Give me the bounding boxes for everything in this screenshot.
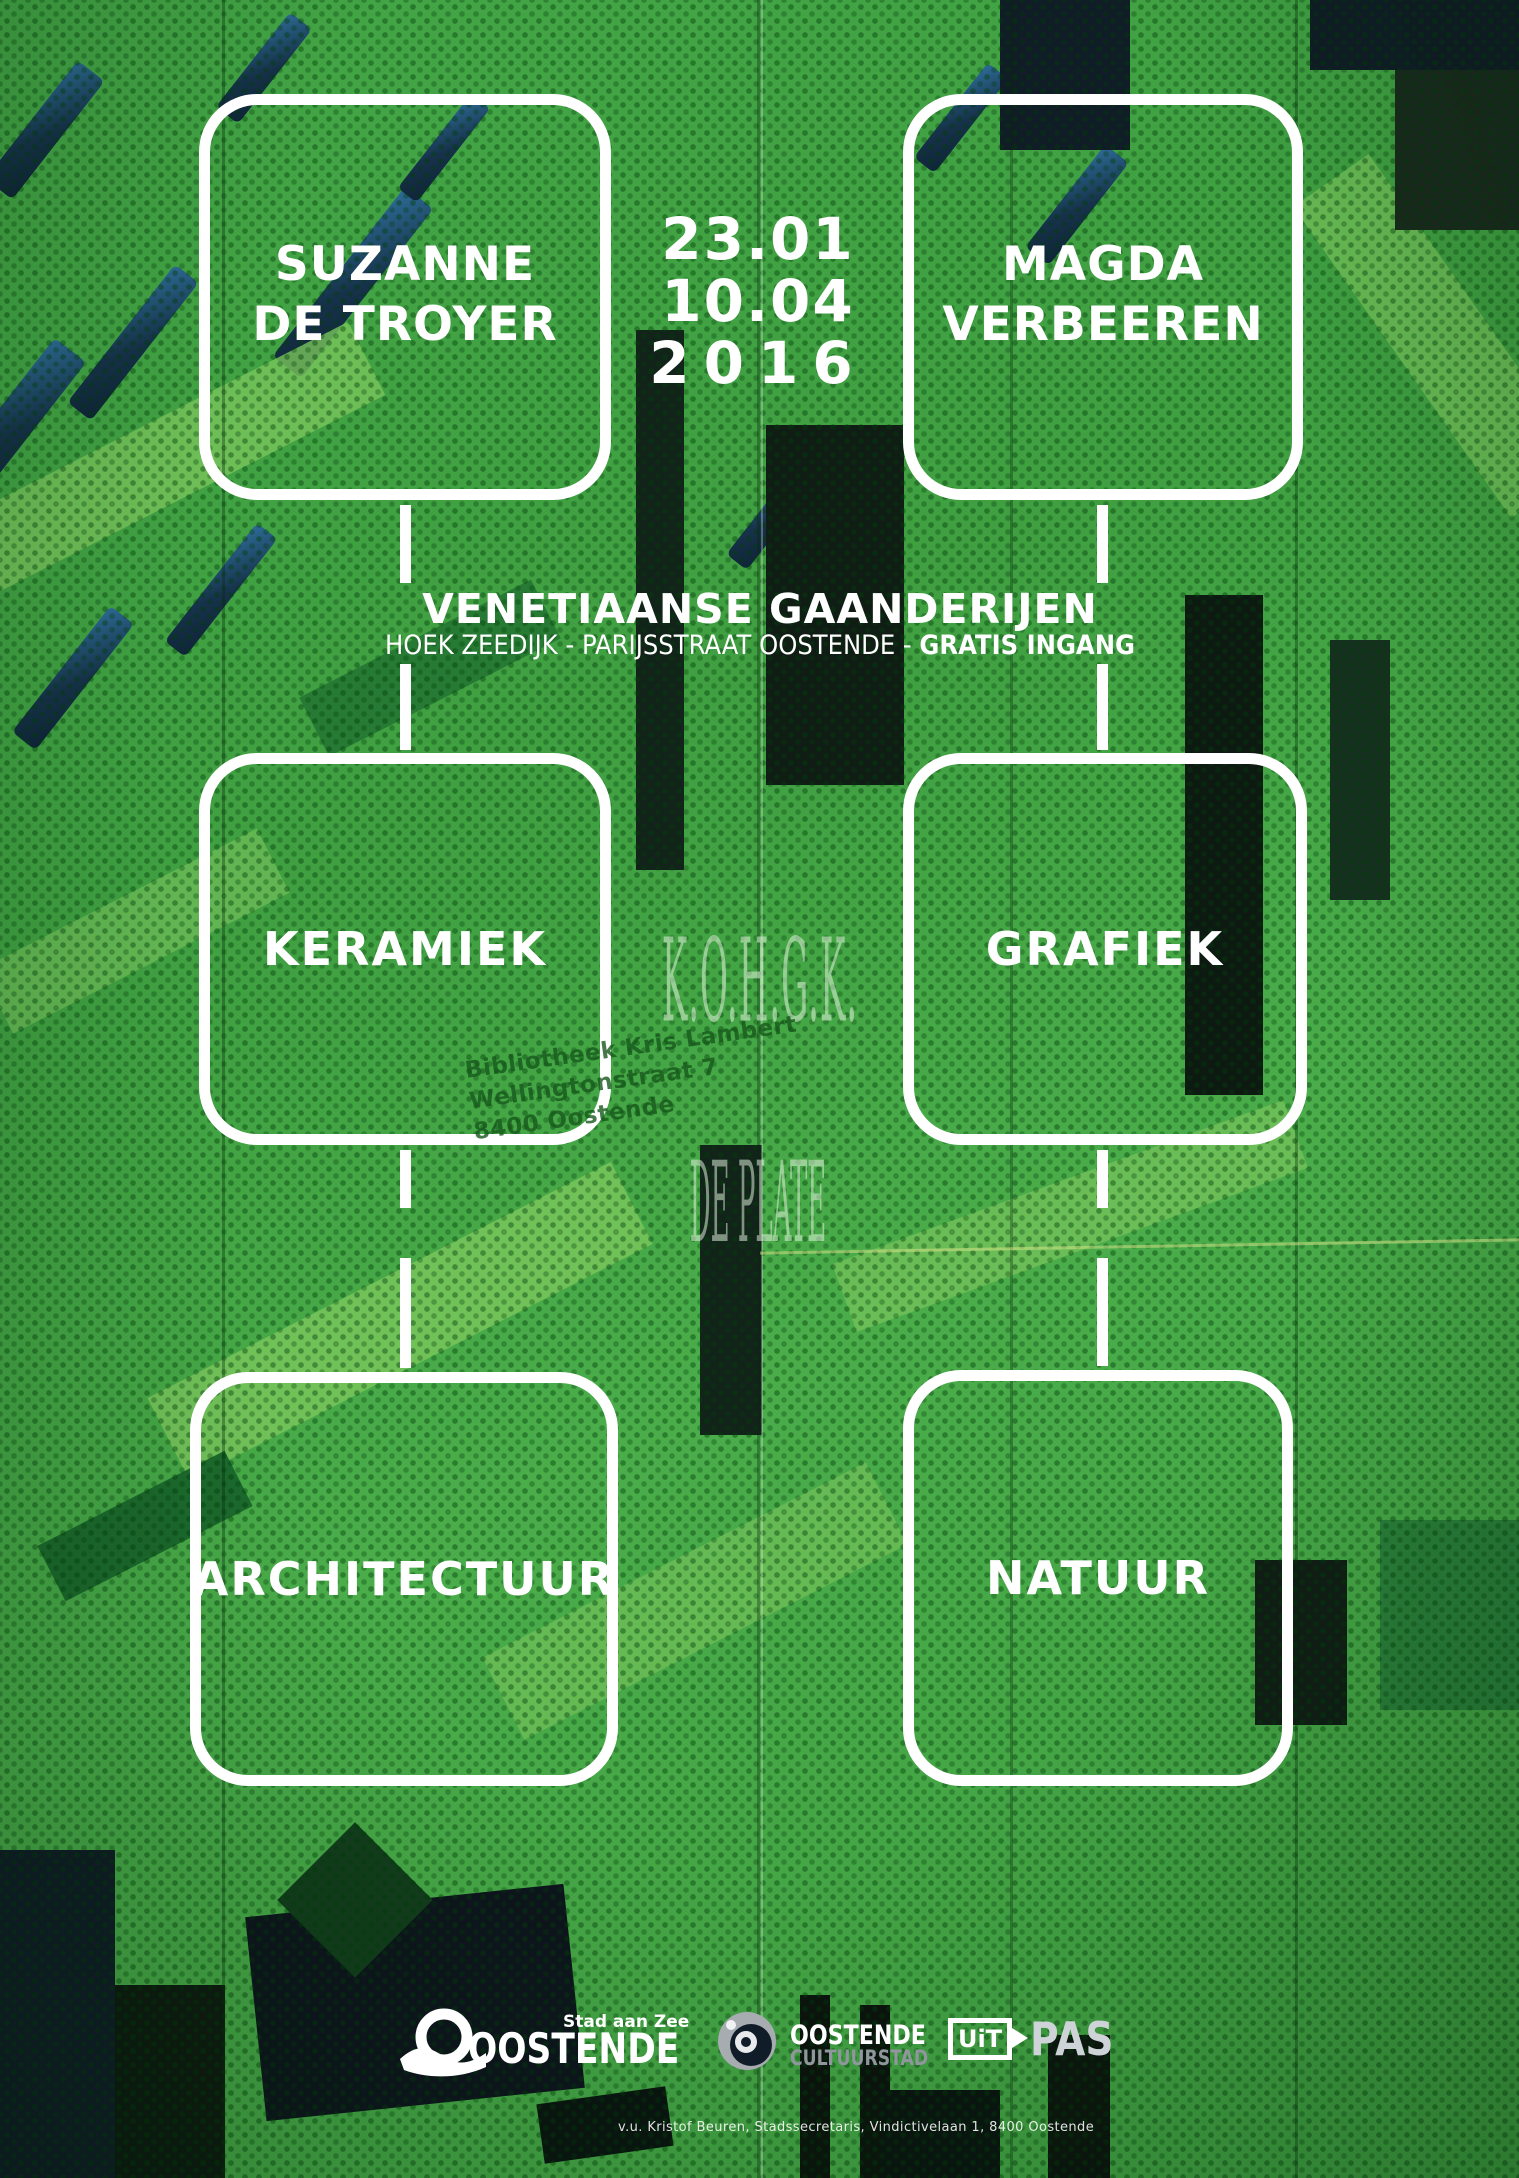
category-label-architectuur: ARCHITECTUUR [190, 1372, 618, 1786]
venue-title: VENETIAANSE GAANDERIJEN [310, 585, 1210, 633]
oostende-logo-name: OOSTENDE [468, 2024, 679, 2073]
category-label-grafiek: GRAFIEK [903, 753, 1307, 1145]
uit-box-icon: UiT [948, 2018, 1012, 2060]
connector-line [1097, 664, 1108, 750]
connector-line [1097, 1258, 1108, 1366]
artist-right-line2: VERBEEREN [903, 295, 1303, 355]
cultuurstad-eye-pupil [730, 2024, 772, 2066]
connector-line [400, 664, 411, 750]
connector-line [400, 505, 411, 583]
venue-address: HOEK ZEEDIJK - PARIJSSTRAAT OOSTENDE - G… [355, 630, 1165, 661]
connector-line [400, 1150, 411, 1208]
uit-flag-icon [1012, 2028, 1028, 2048]
artist-right-line1: MAGDA [903, 235, 1303, 295]
connector-line [1097, 505, 1108, 583]
date-start: 23.01 [608, 208, 908, 270]
cultuurstad-eye-dot [726, 2020, 736, 2030]
cultuurstad-logo-line2: CULTUURSTAD [790, 2046, 928, 2070]
venue-address-bold: GRATIS INGANG [919, 630, 1135, 661]
artist-name-right: MAGDA VERBEEREN [903, 235, 1303, 355]
exhibition-dates: 23.01 10.04 2016 [608, 208, 908, 394]
connector-line [1097, 1150, 1108, 1208]
artist-left-line1: SUZANNE [199, 235, 611, 295]
connector-line [400, 1258, 411, 1368]
artist-name-left: SUZANNE DE TROYER [199, 235, 611, 355]
pas-label: PAS [1030, 2012, 1113, 2066]
artist-left-line2: DE TROYER [199, 295, 611, 355]
date-end: 10.04 [608, 270, 908, 332]
credit-line: v.u. Kristof Beuren, Stadssecretaris, Vi… [618, 2120, 1094, 2135]
cultuurstad-eye-ring [735, 2031, 757, 2053]
exhibition-poster: SUZANNE DE TROYER MAGDA VERBEEREN 23.01 … [0, 0, 1519, 2178]
de-plate-watermark: DE PLATE [688, 1142, 828, 1271]
uit-label: UiT [958, 2025, 1002, 2053]
venue-address-regular: HOEK ZEEDIJK - PARIJSSTRAAT OOSTENDE - [385, 630, 919, 661]
category-label-natuur: NATUUR [903, 1370, 1293, 1786]
cultuurstad-eye-icon [718, 2012, 776, 2070]
date-year: 2016 [608, 332, 908, 394]
